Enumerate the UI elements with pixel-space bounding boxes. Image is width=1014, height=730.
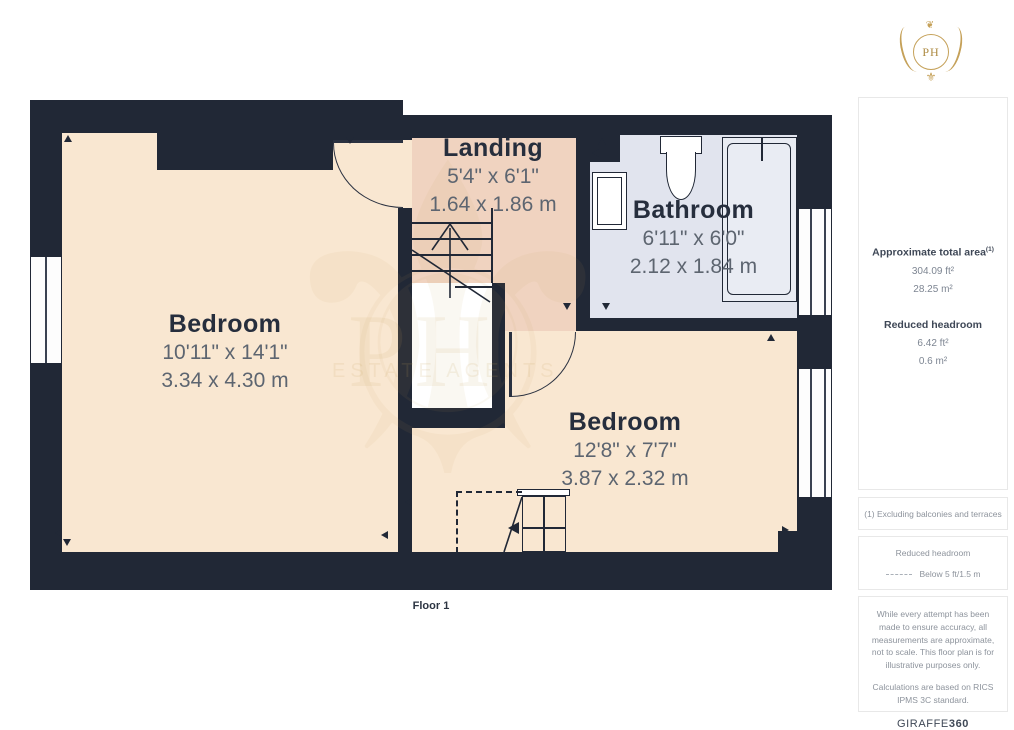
measure-marker (346, 137, 354, 144)
total-area-ft: 304.09 ft² (859, 266, 1007, 277)
measure-marker (63, 539, 71, 546)
total-area-title-text: Approximate total area (872, 247, 986, 259)
legend-row: Below 5 ft/1.5 m (859, 569, 1007, 579)
room-dims-metric: 2.12 x 1.84 m (590, 253, 797, 281)
room-name: Landing (400, 134, 586, 163)
room-dims-imperial: 12'8" x 7'7" (500, 437, 750, 465)
logo-monogram: PH (913, 34, 949, 70)
measure-marker (592, 149, 599, 157)
reduced-headroom-title: Reduced headroom (859, 319, 1007, 331)
room-name: Bedroom (500, 408, 750, 437)
measure-marker (563, 303, 571, 310)
legend-label: Below 5 ft/1.5 m (920, 569, 981, 579)
sidebar-area-panel: Approximate total area(1) 304.09 ft² 28.… (858, 97, 1008, 490)
agency-logo: ❦ PH ⚜ (898, 18, 964, 92)
room-dims-metric: 3.87 x 2.32 m (500, 465, 750, 493)
total-area-title: Approximate total area(1) (859, 246, 1007, 259)
legend-title: Reduced headroom (859, 548, 1007, 558)
room-dims-imperial: 10'11" x 14'1" (85, 339, 365, 367)
room-dims-imperial: 6'11" x 6'0" (590, 225, 797, 253)
room-name: Bedroom (85, 310, 365, 339)
room-label-bathroom: Bathroom 6'11" x 6'0" 2.12 x 1.84 m (590, 196, 797, 280)
brand-suffix: 360 (949, 718, 969, 730)
room-dims-metric: 3.34 x 4.30 m (85, 367, 365, 395)
brand-name: GIRAFFE (897, 718, 949, 730)
footnote-text: (1) Excluding balconies and terraces (864, 509, 1002, 519)
room-dims-imperial: 5'4" x 6'1" (400, 163, 586, 191)
bathtub-divider (761, 138, 763, 161)
brand-logo: GIRAFFE360 (871, 718, 995, 730)
floorplan-page: ⚜ PH ESTATE AGENTS (0, 0, 1014, 717)
room-dims-metric: 1.64 x 1.86 m (400, 191, 586, 219)
measure-marker (64, 135, 72, 142)
reduced-headroom-ft: 6.42 ft² (859, 338, 1007, 349)
sidebar-legend-panel: Reduced headroom Below 5 ft/1.5 m (858, 536, 1008, 590)
room-label-landing: Landing 5'4" x 6'1" 1.64 x 1.86 m (400, 134, 586, 218)
sidebar-footnote-panel: (1) Excluding balconies and terraces (858, 497, 1008, 530)
measure-marker (598, 138, 606, 145)
measure-marker (405, 498, 412, 506)
disclaimer-text-2: Calculations are based on RICS IPMS 3C s… (871, 681, 995, 707)
room-label-bedroom-right: Bedroom 12'8" x 7'7" 3.87 x 2.32 m (500, 408, 750, 492)
measure-marker (381, 531, 388, 539)
reduced-headroom-m: 0.6 m² (859, 356, 1007, 367)
room-label-bedroom-left: Bedroom 10'11" x 14'1" 3.34 x 4.30 m (85, 310, 365, 394)
logo-fleur-icon: ⚜ (898, 70, 964, 84)
measure-marker (602, 303, 610, 310)
disclaimer-text-1: While every attempt has been made to ens… (871, 608, 995, 672)
total-area-m: 28.25 m² (859, 284, 1007, 295)
floor-label: Floor 1 (398, 600, 464, 612)
total-area-footnote-ref: (1) (986, 246, 994, 253)
sidebar-disclaimer-panel: While every attempt has been made to ens… (858, 596, 1008, 712)
measure-marker (55, 529, 62, 537)
measure-marker (782, 526, 789, 534)
dashed-line-icon (886, 574, 912, 575)
room-name: Bathroom (590, 196, 797, 225)
measure-marker (767, 334, 775, 341)
